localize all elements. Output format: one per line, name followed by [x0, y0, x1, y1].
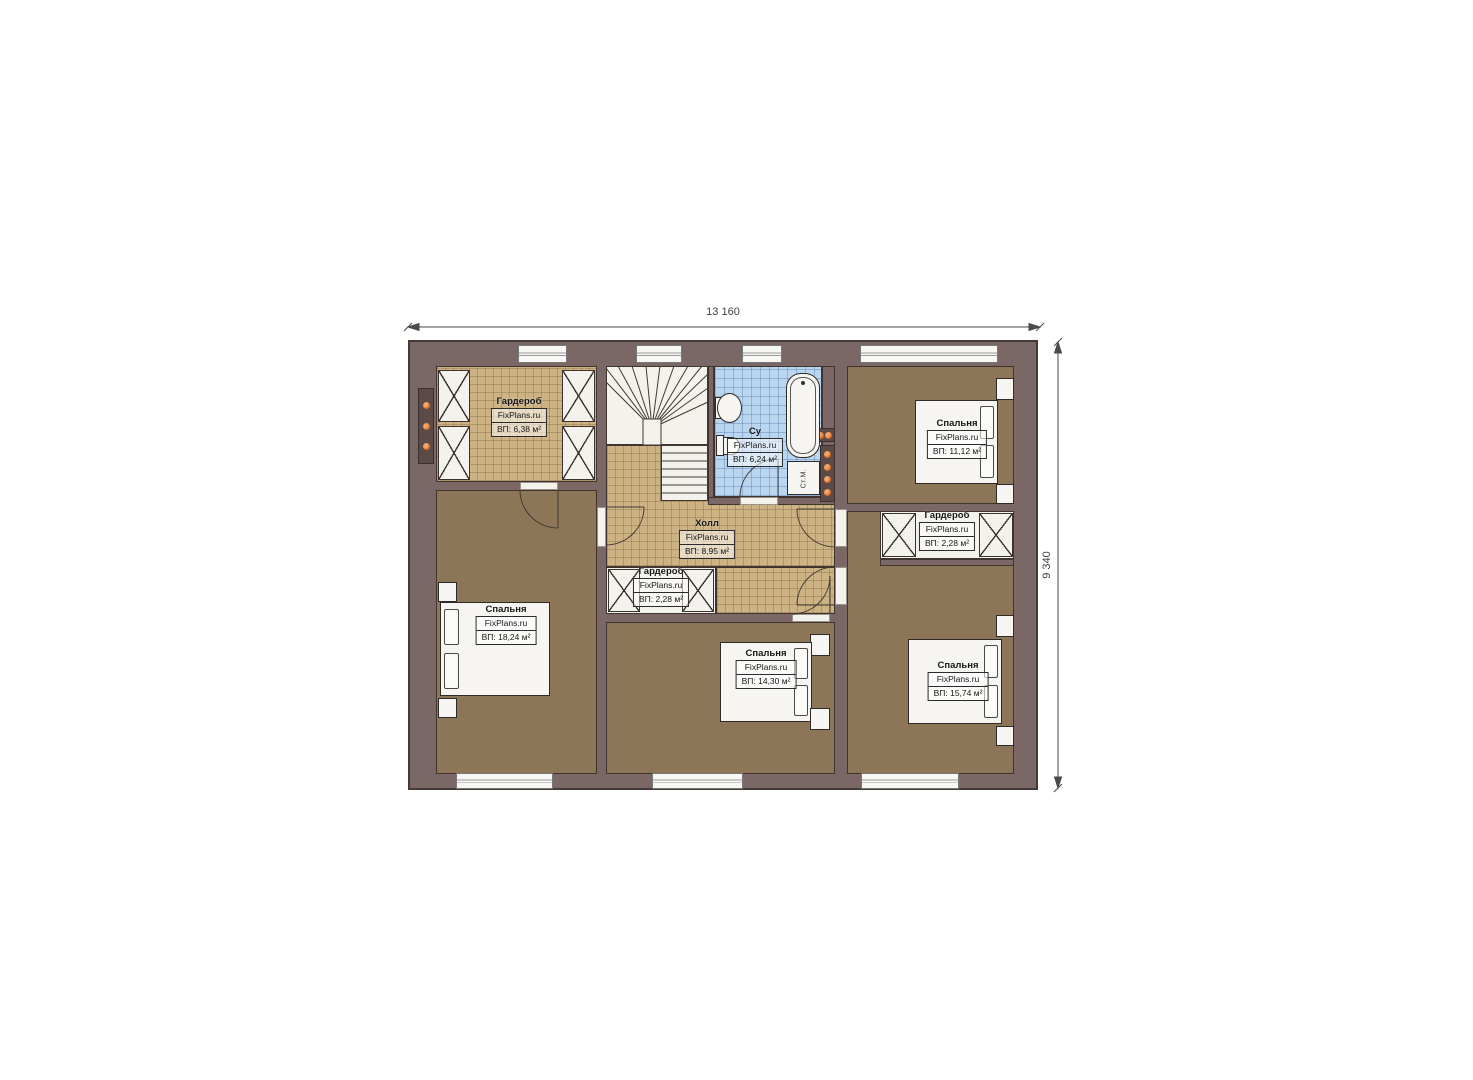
room-area: ВП: 15,74 м² [929, 687, 988, 700]
door-right-top [835, 509, 847, 547]
cabinet [438, 426, 470, 480]
door-wardrobe-top-left [520, 482, 558, 490]
room-area: ВП: 14,30 м² [737, 675, 796, 688]
room-info-box: FixPlans.ru ВП: 18,24 м² [476, 616, 537, 645]
floor-plan: Ст.М. [408, 340, 1038, 790]
room-name: Спальня [485, 604, 526, 615]
room-label-bedroom-bottom-right: Спальня FixPlans.ru ВП: 15,74 м² [928, 660, 989, 701]
wall-bathroom-stairs [708, 366, 714, 505]
room-name: Гардероб [497, 396, 542, 407]
room-info-box: FixPlans.ru ВП: 2,28 м² [633, 578, 689, 607]
window-top-1 [518, 345, 567, 363]
room-name: Гардероб [639, 566, 684, 577]
door-bedroom-middle [792, 614, 830, 622]
room-name: Холл [695, 518, 719, 529]
room-area: ВП: 6,38 м² [492, 423, 546, 436]
room-name: Спальня [745, 648, 786, 659]
room-area: ВП: 2,28 м² [920, 537, 974, 550]
watermark: FixPlans.ru [928, 431, 986, 445]
room-info-box: FixPlans.ru ВП: 8,95 м² [679, 530, 735, 559]
radiator [820, 445, 835, 502]
room-info-box: FixPlans.ru ВП: 11,12 м² [927, 430, 987, 459]
watermark: FixPlans.ru [634, 579, 688, 593]
room-name: Спальня [936, 418, 977, 429]
room-area: ВП: 6,24 м² [728, 453, 782, 466]
room-info-box: FixPlans.ru ВП: 6,38 м² [491, 408, 547, 437]
room-label-bathroom: Су FixPlans.ru ВП: 6,24 м² [727, 426, 783, 467]
window-top-4 [860, 345, 998, 363]
nightstand [810, 634, 830, 656]
room-name: Спальня [937, 660, 978, 671]
nightstand [438, 582, 457, 602]
room-area: ВП: 2,28 м² [634, 593, 688, 606]
window-top-2 [636, 345, 682, 363]
room-label-wardrobe-top-left: Гардероб FixPlans.ru ВП: 6,38 м² [491, 396, 547, 437]
radiator [418, 388, 434, 464]
nightstand [996, 726, 1014, 746]
nightstand [438, 698, 457, 718]
watermark: FixPlans.ru [728, 439, 782, 453]
room-info-box: FixPlans.ru ВП: 14,30 м² [736, 660, 797, 689]
cabinet [979, 513, 1013, 557]
door-bedroom-left [597, 507, 606, 547]
room-info-box: FixPlans.ru ВП: 15,74 м² [928, 672, 989, 701]
watermark: FixPlans.ru [929, 673, 988, 687]
nightstand [996, 615, 1014, 637]
cabinet [562, 426, 595, 480]
window-bottom-1 [456, 773, 553, 789]
bathtub [786, 373, 820, 458]
wall-below-wardrobe-right [880, 559, 1014, 566]
watermark: FixPlans.ru [477, 617, 536, 631]
room-name: Гардероб [925, 510, 970, 521]
room-info-box: FixPlans.ru ВП: 6,24 м² [727, 438, 783, 467]
stairwell-floor [606, 366, 708, 445]
room-info-box: FixPlans.ru ВП: 2,28 м² [919, 522, 975, 551]
door-bathroom [740, 497, 778, 505]
room-area: ВП: 11,12 м² [928, 445, 986, 458]
cabinet [562, 370, 595, 422]
watermark: FixPlans.ru [920, 523, 974, 537]
washing-machine-label: Ст.М. [800, 468, 807, 488]
dimension-height-line [1048, 334, 1068, 796]
room-label-wardrobe-middle: Гардероб FixPlans.ru ВП: 2,28 м² [633, 566, 689, 607]
page: { "plan": { "watermark": "FixPlans.ru", … [0, 0, 1473, 1080]
room-label-bedroom-left: Спальня FixPlans.ru ВП: 18,24 м² [476, 604, 537, 645]
room-floor-hall-ext [716, 567, 835, 614]
door-right-bottom [835, 567, 847, 605]
room-name: Су [749, 426, 761, 437]
window-top-3 [742, 345, 782, 363]
washing-machine: Ст.М. [787, 461, 820, 495]
room-label-bedroom-middle: Спальня FixPlans.ru ВП: 14,30 м² [736, 648, 797, 689]
watermark: FixPlans.ru [737, 661, 796, 675]
cabinet [882, 513, 916, 557]
window-bottom-2 [652, 773, 743, 789]
watermark: FixPlans.ru [680, 531, 734, 545]
room-area: ВП: 18,24 м² [477, 631, 536, 644]
room-label-hall: Холл FixPlans.ru ВП: 8,95 м² [679, 518, 735, 559]
nightstand [996, 378, 1014, 400]
nightstand [810, 708, 830, 730]
nightstand [996, 484, 1014, 504]
cabinet [438, 370, 470, 422]
watermark: FixPlans.ru [492, 409, 546, 423]
room-area: ВП: 8,95 м² [680, 545, 734, 558]
room-label-bedroom-top-right: Спальня FixPlans.ru ВП: 11,12 м² [927, 418, 987, 459]
window-bottom-3 [861, 773, 959, 789]
room-label-wardrobe-right: Гардероб FixPlans.ru ВП: 2,28 м² [919, 510, 975, 551]
dimension-width-line [400, 317, 1048, 337]
stair-flight-floor [661, 445, 708, 501]
sink [717, 393, 742, 423]
